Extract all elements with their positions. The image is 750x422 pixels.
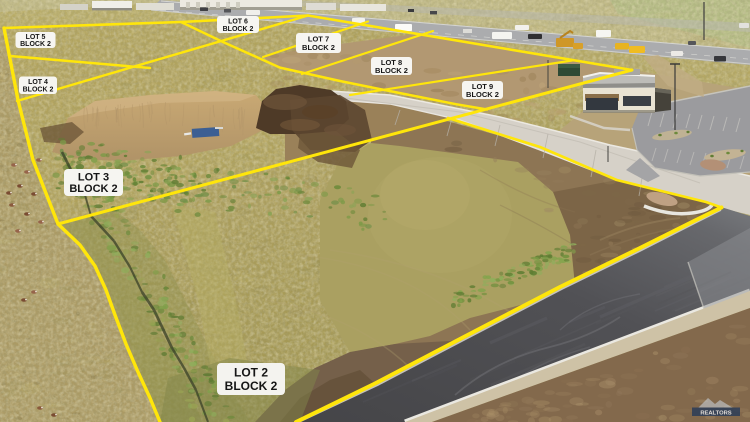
svg-text:BLOCK 2: BLOCK 2 bbox=[302, 43, 335, 52]
svg-text:BLOCK 2: BLOCK 2 bbox=[23, 86, 54, 93]
svg-text:LOT 6: LOT 6 bbox=[228, 18, 248, 25]
svg-text:LOT 4: LOT 4 bbox=[28, 79, 48, 86]
svg-text:LOT 2: LOT 2 bbox=[234, 365, 268, 379]
svg-text:BLOCK 2: BLOCK 2 bbox=[223, 26, 254, 33]
svg-text:REALTORS: REALTORS bbox=[700, 410, 731, 416]
svg-text:BLOCK 2: BLOCK 2 bbox=[466, 90, 499, 99]
svg-text:BLOCK 2: BLOCK 2 bbox=[20, 41, 51, 48]
svg-text:LOT 5: LOT 5 bbox=[26, 34, 46, 41]
svg-text:BLOCK 2: BLOCK 2 bbox=[375, 66, 408, 75]
svg-text:LOT 3: LOT 3 bbox=[78, 171, 109, 183]
svg-text:BLOCK 2: BLOCK 2 bbox=[225, 379, 278, 393]
svg-text:BLOCK 2: BLOCK 2 bbox=[69, 183, 117, 195]
